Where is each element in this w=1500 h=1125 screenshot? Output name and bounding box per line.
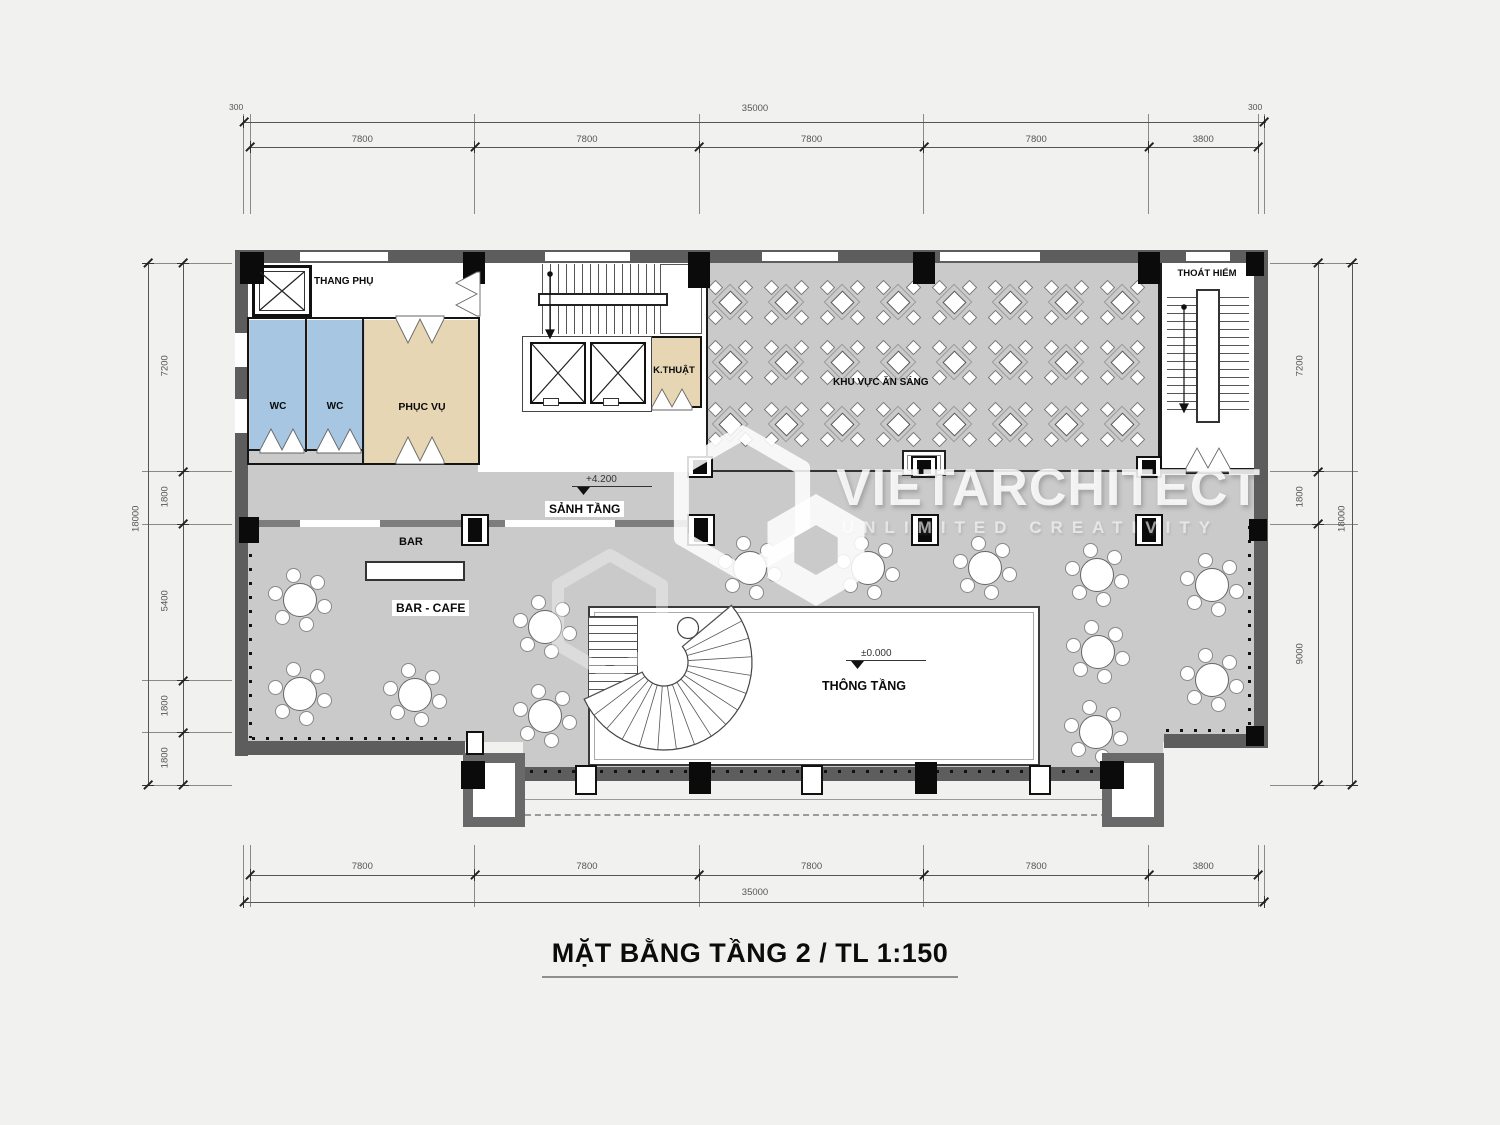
chair [1017, 309, 1033, 325]
chair [905, 309, 921, 325]
room-label-thang-phu: THANG PHỤ [314, 277, 373, 287]
framed-column [575, 765, 597, 795]
column [1249, 519, 1267, 541]
room-label-thoat-hiem: THOÁT HIỂM [1172, 269, 1242, 279]
terrace-edge-line [525, 799, 1105, 800]
chair [1097, 669, 1112, 684]
square-table [819, 279, 865, 325]
dim-overall-top: 35000 [700, 104, 810, 114]
square-table [763, 401, 809, 447]
chair [317, 693, 332, 708]
dim-label: 3800 [1173, 135, 1233, 145]
column [463, 252, 485, 284]
column [239, 517, 259, 543]
dim-label: 7800 [332, 135, 392, 145]
wall-window [505, 520, 615, 527]
square-table [1099, 279, 1145, 325]
chair [414, 712, 429, 727]
chair [1129, 369, 1145, 385]
main-stair-handrail [538, 293, 668, 306]
column [1246, 726, 1264, 746]
wall-window [762, 252, 838, 261]
void-inner-rail [594, 612, 1034, 760]
chair [854, 536, 869, 551]
table-top [733, 551, 767, 585]
dim-label: 1800 [160, 736, 170, 780]
elevator-door [603, 398, 619, 406]
square-table [763, 279, 809, 325]
interior-wall [1158, 263, 1162, 470]
column [688, 252, 710, 288]
chair [905, 431, 921, 447]
chair [1066, 638, 1081, 653]
round-table [265, 565, 335, 635]
room-label-bar: BAR [399, 537, 423, 548]
dim-line [250, 147, 1258, 148]
dim-line [1352, 263, 1353, 785]
room-label-k-thuat: K.THUẬT [645, 366, 703, 376]
round-table [510, 592, 580, 662]
level-value-hall: +4.200 [586, 475, 617, 485]
dim-label: 1800 [160, 683, 170, 727]
square-table [931, 279, 977, 325]
round-table [1062, 540, 1132, 610]
room-label-thong-tang: THÔNG TẦNG [822, 680, 906, 693]
room-label-wc-right: WC [320, 402, 350, 412]
drawing-title: MẶT BẰNG TẦNG 2 / TL 1:150 [542, 938, 959, 978]
chair [531, 595, 546, 610]
dim-line [243, 902, 1266, 903]
wall-window [940, 252, 1040, 261]
column [1138, 252, 1160, 284]
room-label-khu-vuc-an-sang: KHU VỰC ĂN SÁNG [833, 378, 929, 388]
column [913, 252, 935, 284]
column [1142, 518, 1156, 542]
chair [737, 431, 753, 447]
chair [1113, 731, 1128, 746]
column [915, 762, 937, 794]
chair [531, 684, 546, 699]
extension-line [923, 114, 924, 214]
square-table [987, 279, 1033, 325]
chair [286, 662, 301, 677]
chair [749, 585, 764, 600]
chair [737, 369, 753, 385]
escape-stair-handrail [1196, 289, 1220, 423]
round-table [1063, 617, 1133, 687]
square-table [931, 401, 977, 447]
chair [849, 431, 865, 447]
exterior-wall-bar-bottom [235, 741, 465, 755]
dim-label: 5400 [160, 579, 170, 623]
chair [737, 309, 753, 325]
elevator-shaft [530, 342, 586, 404]
dim-label: 7800 [782, 135, 842, 145]
chair [849, 309, 865, 325]
dim-label: 7800 [557, 135, 617, 145]
chair [1083, 543, 1098, 558]
extension-line [1258, 114, 1259, 214]
room-label-phuc-vu: PHỤC VỤ [383, 402, 461, 413]
column [240, 252, 264, 284]
dim-label: 3800 [1173, 861, 1233, 872]
exterior-wall-right [1254, 250, 1268, 748]
extension-line [250, 114, 251, 214]
chair [1082, 700, 1097, 715]
chair [299, 617, 314, 632]
floor-plan-canvas: THANG PHỤ WC WC PHỤC VỤ K.THUẬT KHU VỰC … [0, 0, 1500, 1125]
round-table [265, 659, 335, 729]
chair [1115, 651, 1130, 666]
chair [1073, 431, 1089, 447]
wall-window [300, 252, 388, 261]
dim-label: 7800 [1006, 861, 1066, 872]
extension-line [699, 114, 700, 214]
chair [1198, 648, 1213, 663]
table-top [1079, 715, 1113, 749]
square-table [1099, 401, 1145, 447]
dim-label: 7800 [782, 861, 842, 872]
extension-line [243, 114, 244, 214]
chair [286, 568, 301, 583]
level-value-void: ±0.000 [861, 649, 892, 659]
spiral-stair-flight [588, 616, 638, 702]
dim-label: 7800 [332, 861, 392, 872]
chair [1017, 431, 1033, 447]
column [1100, 761, 1124, 789]
square-table [1043, 279, 1089, 325]
chair [1084, 620, 1099, 635]
chair [562, 715, 577, 730]
chair [1129, 431, 1145, 447]
chair [1180, 666, 1195, 681]
chair [544, 733, 559, 748]
framed-column [466, 731, 484, 755]
column [468, 518, 482, 542]
chair [867, 585, 882, 600]
chair [718, 554, 733, 569]
round-table [950, 533, 1020, 603]
square-table [987, 339, 1033, 385]
square-table [1099, 339, 1145, 385]
column [689, 762, 711, 794]
column [918, 518, 932, 542]
round-table [510, 681, 580, 751]
elevator-door [543, 398, 559, 406]
chair [268, 586, 283, 601]
column [461, 761, 485, 789]
chair [432, 694, 447, 709]
interior-wall [362, 319, 364, 464]
table-top [283, 677, 317, 711]
dim-label: 7200 [160, 344, 170, 388]
table-top [528, 699, 562, 733]
dim-label: 1800 [1295, 475, 1305, 519]
chair [513, 702, 528, 717]
chair [1114, 574, 1129, 589]
extension-line [1264, 114, 1265, 214]
chair [513, 613, 528, 628]
chair [1229, 679, 1244, 694]
dim-line [243, 122, 1266, 123]
square-table [707, 401, 753, 447]
chair [383, 681, 398, 696]
table-top [1080, 558, 1114, 592]
room-label-sanh-tang: SẢNH TẦNG [545, 501, 624, 517]
square-table [875, 279, 921, 325]
chair [984, 585, 999, 600]
drawing-title-wrap: MẶT BẰNG TẦNG 2 / TL 1:150 [0, 938, 1500, 978]
column [1246, 252, 1264, 276]
room-label-wc-left: WC [263, 402, 293, 412]
square-table [987, 401, 1033, 447]
chair [1198, 553, 1213, 568]
curtain-wall-mullions [1248, 526, 1251, 730]
round-table [833, 533, 903, 603]
table-top [1081, 635, 1115, 669]
round-table [715, 533, 785, 603]
square-table [707, 339, 753, 385]
chair [1073, 369, 1089, 385]
dim-line [250, 875, 1258, 876]
dim-label: 9000 [1295, 631, 1305, 675]
chair [961, 431, 977, 447]
dim-label: 7200 [1295, 344, 1305, 388]
dim-overall-bottom: 35000 [700, 888, 810, 898]
wall-window [300, 520, 380, 527]
table-top [283, 583, 317, 617]
table-top [398, 678, 432, 712]
chair [1064, 718, 1079, 733]
chair [268, 680, 283, 695]
square-table [707, 279, 753, 325]
chair [562, 626, 577, 641]
chair [793, 431, 809, 447]
dim-overall-right: 18000 [1337, 489, 1347, 549]
chair [1229, 584, 1244, 599]
chair [1096, 592, 1111, 607]
chair [1065, 561, 1080, 576]
chair [1211, 697, 1226, 712]
canopy-dashed-line [525, 814, 1107, 816]
chair [736, 536, 751, 551]
chair [1073, 309, 1089, 325]
dim-overall-left: 18000 [131, 489, 141, 549]
table-top [968, 551, 1002, 585]
table-top [1195, 663, 1229, 697]
square-table [819, 401, 865, 447]
chair [767, 567, 782, 582]
elevator-shaft [590, 342, 646, 404]
table-top [1195, 568, 1229, 602]
wall-window [545, 252, 630, 261]
curtain-wall-mullions [249, 526, 252, 738]
round-table [1177, 645, 1247, 715]
column [1142, 460, 1156, 474]
chair [953, 554, 968, 569]
extension-line [474, 114, 475, 214]
room-label-bar-cafe: BAR - CAFE [392, 600, 469, 616]
dim-label: 1800 [160, 475, 170, 519]
chair [317, 599, 332, 614]
dim-side-offset-left: 300 [229, 103, 243, 112]
column [694, 518, 708, 542]
square-table [931, 339, 977, 385]
dim-side-offset-right: 300 [1248, 103, 1262, 112]
table-top [851, 551, 885, 585]
square-table [875, 401, 921, 447]
chair [836, 554, 851, 569]
interior-wall [249, 449, 363, 451]
round-table [380, 660, 450, 730]
square-table [763, 339, 809, 385]
curtain-wall-mullions [1166, 729, 1248, 732]
interior-wall [1162, 468, 1254, 474]
curtain-wall-mullions [252, 737, 462, 740]
chair [1002, 567, 1017, 582]
interior-wall [305, 319, 307, 452]
bar-counter [365, 561, 465, 581]
column [917, 460, 931, 474]
column [693, 460, 707, 474]
chair [971, 536, 986, 551]
chair [1017, 369, 1033, 385]
wall-window [1186, 252, 1230, 261]
chair [793, 369, 809, 385]
table-top [528, 610, 562, 644]
chair [1211, 602, 1226, 617]
chair [961, 309, 977, 325]
dim-label: 7800 [557, 861, 617, 872]
chair [961, 369, 977, 385]
chair [885, 567, 900, 582]
framed-column [1029, 765, 1051, 795]
round-table [1177, 550, 1247, 620]
chair [544, 644, 559, 659]
framed-column [801, 765, 823, 795]
dim-label: 7800 [1006, 135, 1066, 145]
square-table [1043, 339, 1089, 385]
secondary-elevator-cab [259, 271, 305, 311]
chair [1129, 309, 1145, 325]
chair [1180, 571, 1195, 586]
chair [793, 309, 809, 325]
chair [299, 711, 314, 726]
chair [401, 663, 416, 678]
dim-line [148, 263, 149, 785]
square-table [1043, 401, 1089, 447]
extension-line [1148, 114, 1149, 214]
exterior-wall-top [235, 250, 1268, 263]
